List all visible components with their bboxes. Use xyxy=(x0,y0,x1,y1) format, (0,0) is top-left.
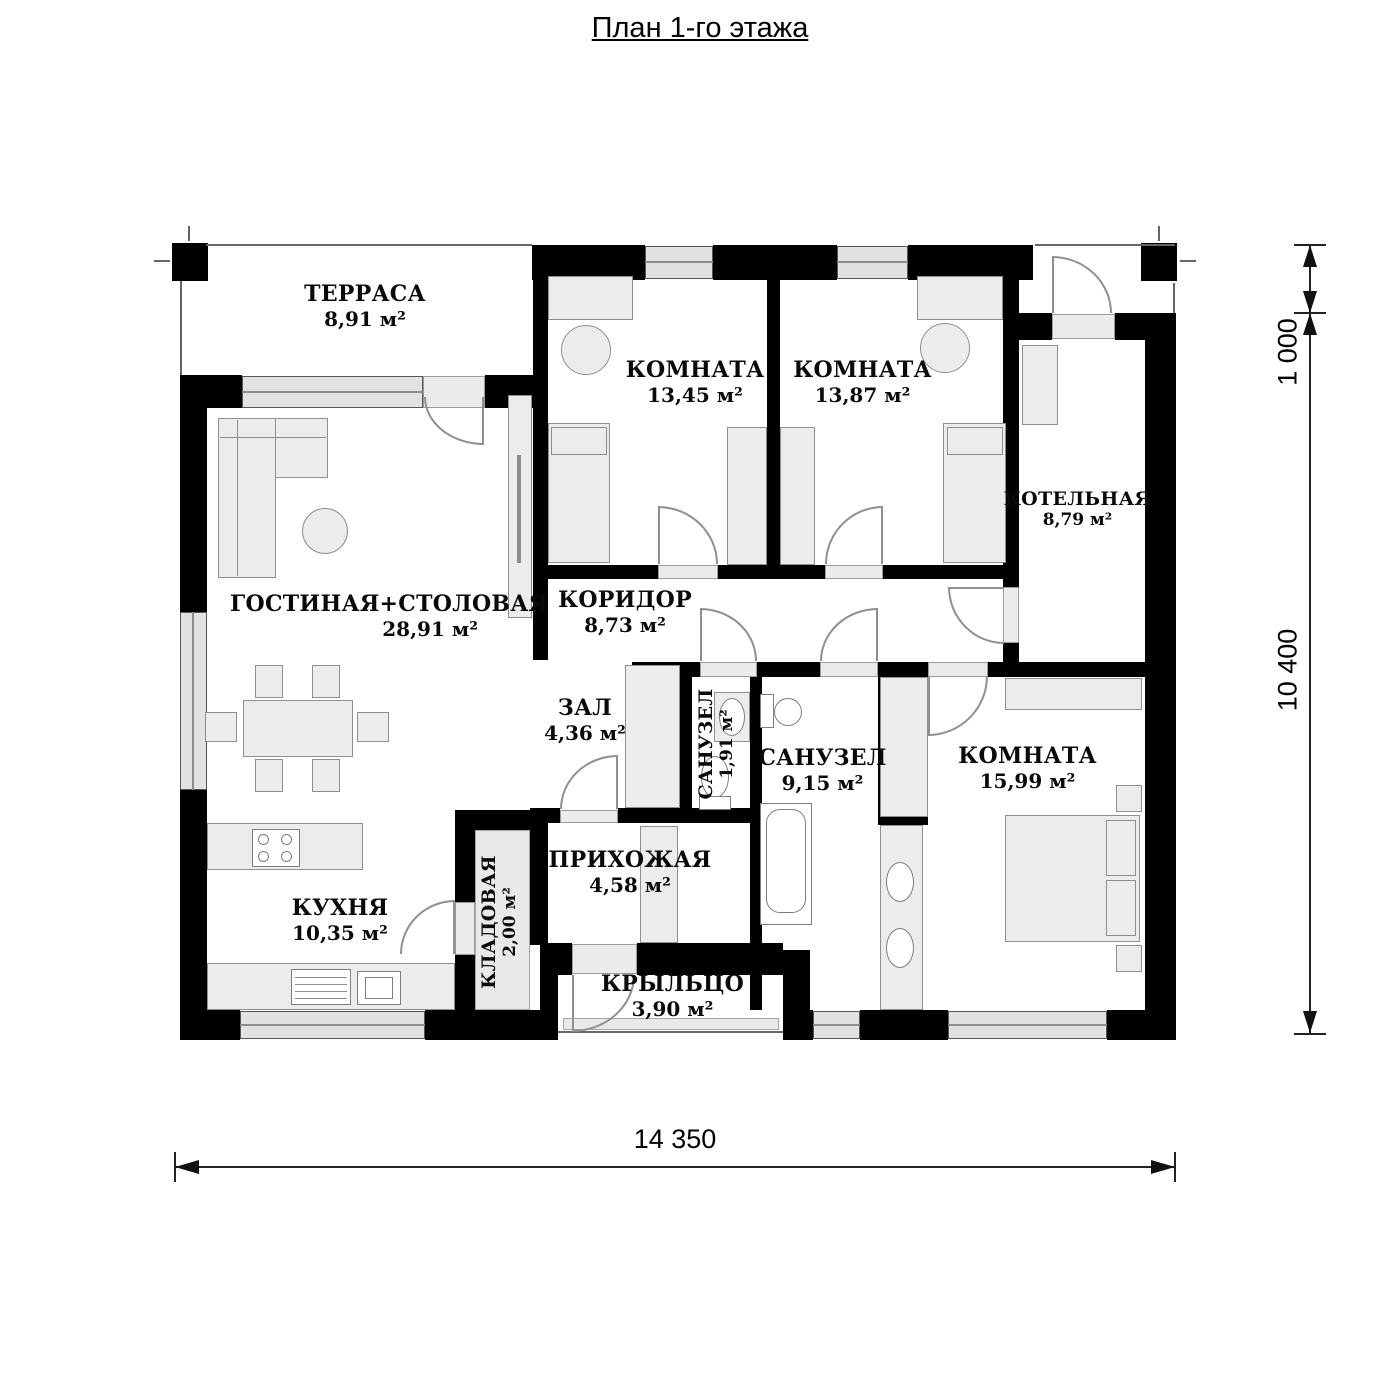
wardrobe xyxy=(727,427,767,565)
door-bedroom3-leaf xyxy=(928,676,930,736)
axis-tick xyxy=(1158,226,1160,241)
chair xyxy=(357,712,389,742)
window-frame xyxy=(242,391,423,393)
wall-pantry-west xyxy=(455,830,475,902)
room-label-porch: КРЫЛЬЦО 3,90 м² xyxy=(590,972,755,1022)
dimension-label-depth: 10 400 xyxy=(1273,629,1304,712)
coffee-table xyxy=(302,508,348,554)
wardrobe xyxy=(780,427,815,565)
wall-corridor-south xyxy=(988,662,1145,677)
window-frame xyxy=(240,1024,425,1026)
threshold-boiler-exterior-door xyxy=(1052,314,1115,339)
window-frame xyxy=(645,261,713,263)
terrace-edge-top xyxy=(206,244,532,246)
axis-tick xyxy=(188,226,190,241)
wardrobe xyxy=(1005,678,1142,710)
room-label-hall: ЗАЛ 4,36 м² xyxy=(520,696,650,746)
rack-line xyxy=(295,998,347,999)
rack-line xyxy=(295,991,347,992)
terrace-edge-left xyxy=(180,281,182,377)
kitchen-sink-basin xyxy=(365,977,393,999)
window-frame xyxy=(813,1024,860,1026)
drying-rack xyxy=(291,969,351,1005)
room-label-wc: САНУЗЕЛ 1,91 м² xyxy=(695,688,737,799)
bathroom-vanity xyxy=(880,825,923,1010)
chair xyxy=(255,759,283,792)
door-boiler-arc xyxy=(948,587,1004,644)
threshold-entrance-door xyxy=(572,944,637,974)
pillow xyxy=(551,427,607,455)
toilet-tank xyxy=(760,694,774,728)
wall-bottom xyxy=(425,1010,558,1040)
chair xyxy=(312,665,340,698)
sofa-cushion-line xyxy=(220,437,326,438)
wall-bottom xyxy=(1107,1010,1176,1040)
wall-bedrooms-south xyxy=(718,565,825,579)
pillow xyxy=(1106,880,1136,936)
desk xyxy=(548,276,633,320)
door-entrance-leaf xyxy=(572,975,574,1032)
room-label-pantry: КЛАДОВАЯ 2,00 м² xyxy=(478,855,520,989)
window-frame xyxy=(948,1024,1107,1026)
door-boiler-leaf xyxy=(948,587,1004,589)
dining-table xyxy=(243,700,353,757)
wall-pantry-west xyxy=(455,955,475,1010)
door-boiler-exterior-arc xyxy=(1052,256,1112,313)
pillow xyxy=(1106,820,1136,876)
threshold xyxy=(928,662,988,677)
wall xyxy=(908,245,1033,280)
arrow-up-icon xyxy=(1303,313,1317,335)
room-label-bathroom: САНУЗЕЛ 9,15 м² xyxy=(740,746,905,796)
wall-left xyxy=(180,790,207,1040)
rack-line xyxy=(295,977,347,978)
wall xyxy=(618,808,762,823)
wall-bedrooms-south xyxy=(883,565,1003,579)
door-terrace-leaf xyxy=(482,397,484,445)
arrow-right-icon xyxy=(1151,1160,1175,1174)
door-bedroom2-leaf xyxy=(881,506,883,564)
chair xyxy=(205,712,237,742)
arrow-down-icon xyxy=(1303,291,1317,313)
dimension-label-width: 14 350 xyxy=(575,1124,775,1155)
threshold xyxy=(560,810,618,823)
sink xyxy=(886,928,914,968)
threshold xyxy=(820,662,878,677)
chair xyxy=(255,665,283,698)
wall-bedrooms-south xyxy=(548,565,658,579)
page-title: План 1-го этажа xyxy=(470,12,930,45)
pillow xyxy=(947,427,1003,455)
dimension-tick xyxy=(1294,1033,1326,1035)
threshold xyxy=(455,902,475,955)
window-frame xyxy=(192,612,194,790)
sofa xyxy=(218,418,276,578)
nightstand xyxy=(1116,945,1142,972)
wall xyxy=(532,245,645,280)
axis-tick xyxy=(154,260,170,262)
wall xyxy=(180,375,242,408)
door-entry-hall-leaf xyxy=(616,755,618,809)
wall-pantry-north xyxy=(455,810,548,830)
wall xyxy=(1115,313,1176,340)
room-label-bedroom2: КОМНАТА 13,87 м² xyxy=(765,358,960,408)
sofa-cushion-line xyxy=(237,420,238,576)
stove-burner xyxy=(281,851,292,862)
dimension-label-terrace-offset: 1 000 xyxy=(1273,318,1304,386)
door-boiler-exterior-leaf xyxy=(1052,256,1054,313)
dimension-line-width xyxy=(175,1166,1175,1168)
threshold xyxy=(825,565,883,579)
desk xyxy=(917,276,1003,320)
room-label-entry: ПРИХОЖАЯ 4,58 м² xyxy=(545,848,715,898)
wall-porch-right xyxy=(783,950,810,1012)
door-terrace-arc xyxy=(424,397,484,445)
chair xyxy=(312,759,340,792)
toilet-bowl xyxy=(774,698,802,726)
floor-plan: План 1-го этажа xyxy=(0,0,1400,1400)
wall-bottom xyxy=(207,1010,240,1040)
tv xyxy=(517,455,521,563)
axis-tick xyxy=(1180,260,1196,262)
wall xyxy=(878,817,928,825)
bathtub-basin xyxy=(766,809,806,913)
door-pantry-leaf xyxy=(453,900,455,954)
dimension-line-depth xyxy=(1309,245,1311,1035)
door-bedroom1-arc xyxy=(658,506,718,564)
wall-bottom xyxy=(860,1010,948,1040)
arrow-left-icon xyxy=(175,1160,199,1174)
arrow-down-icon xyxy=(1303,1011,1317,1033)
sink xyxy=(886,862,914,902)
pier-top-left xyxy=(172,243,208,281)
window-frame xyxy=(837,261,908,263)
rack-line xyxy=(295,984,347,985)
room-label-corridor: КОРИДОР 8,73 м² xyxy=(545,588,705,638)
wall-corridor-south xyxy=(757,662,820,677)
alcove-edge-right xyxy=(1173,283,1175,315)
porch-edge-bottom xyxy=(558,1031,783,1033)
nightstand xyxy=(1116,785,1142,812)
wall-hall-east xyxy=(680,662,692,810)
stove-burner xyxy=(258,851,269,862)
door-entry-hall-arc xyxy=(560,755,618,809)
threshold xyxy=(1003,587,1019,643)
room-label-kitchen: КУХНЯ 10,35 м² xyxy=(255,896,425,946)
stove-burner xyxy=(258,834,269,845)
threshold xyxy=(658,565,718,579)
wall-right xyxy=(1145,340,1176,1040)
door-bedroom1-leaf xyxy=(658,506,660,564)
boiler-equipment xyxy=(1022,345,1058,425)
room-label-bedroom3: КОМНАТА 15,99 м² xyxy=(940,744,1115,794)
threshold xyxy=(700,662,757,677)
stove-burner xyxy=(281,834,292,845)
door-bathroom-leaf xyxy=(876,608,878,661)
door-bathroom-arc xyxy=(820,608,878,661)
wall-entry-south xyxy=(548,943,572,975)
wall-bottom xyxy=(783,1010,813,1040)
room-label-boiler: КОТЕЛЬНАЯ 8,79 м² xyxy=(985,488,1170,530)
door-bedroom3-arc xyxy=(928,676,988,736)
alcove-edge-top xyxy=(1035,244,1175,246)
pier-top-right xyxy=(1141,243,1177,281)
wall-left xyxy=(180,375,207,612)
room-label-living: ГОСТИНАЯ+СТОЛОВАЯ 28,91 м² xyxy=(230,592,492,642)
arrow-up-icon xyxy=(1303,245,1317,267)
door-wc-arc xyxy=(700,608,757,661)
room-label-terrace: ТЕРРАСА 8,91 м² xyxy=(265,282,465,332)
door-bedroom2-arc xyxy=(825,506,883,564)
